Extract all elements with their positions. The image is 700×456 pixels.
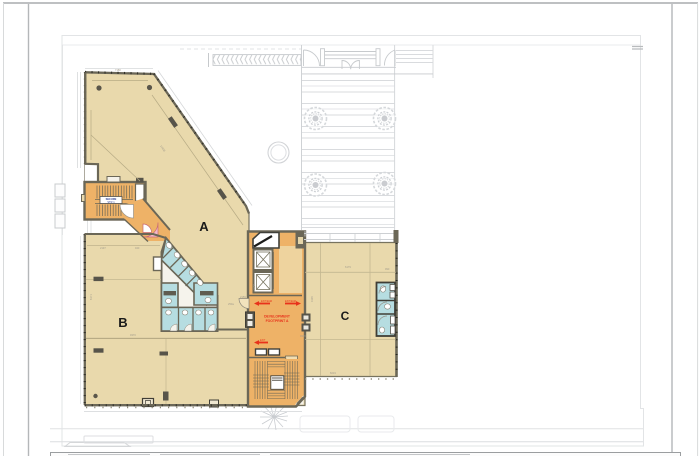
svg-text:DEVELOPMENT: DEVELOPMENT [264, 315, 291, 319]
svg-text:EXIT/EGR: EXIT/EGR [261, 300, 272, 303]
svg-text:9370: 9370 [130, 333, 136, 337]
svg-text:EXIT: EXIT [260, 339, 266, 342]
svg-text:4135: 4135 [310, 296, 314, 302]
svg-text:B: B [118, 315, 127, 330]
svg-text:A: A [199, 219, 209, 234]
svg-text:8219: 8219 [330, 371, 336, 375]
svg-text:7180: 7180 [115, 68, 121, 72]
svg-text:C: C [341, 309, 350, 323]
svg-text:STR 1: STR 1 [107, 200, 115, 204]
svg-text:990: 990 [385, 267, 390, 271]
svg-text:6171: 6171 [89, 294, 93, 300]
svg-text:940: 940 [135, 246, 140, 250]
svg-text:FOOTPRINT A: FOOTPRINT A [266, 319, 289, 323]
svg-text:EXIT/EGR: EXIT/EGR [285, 300, 296, 303]
svg-text:9370: 9370 [300, 334, 306, 338]
svg-text:2158: 2158 [252, 284, 256, 290]
svg-text:6179: 6179 [345, 265, 351, 269]
svg-text:250a: 250a [228, 302, 234, 306]
svg-text:2159: 2159 [240, 295, 246, 299]
svg-text:2197: 2197 [100, 246, 106, 250]
